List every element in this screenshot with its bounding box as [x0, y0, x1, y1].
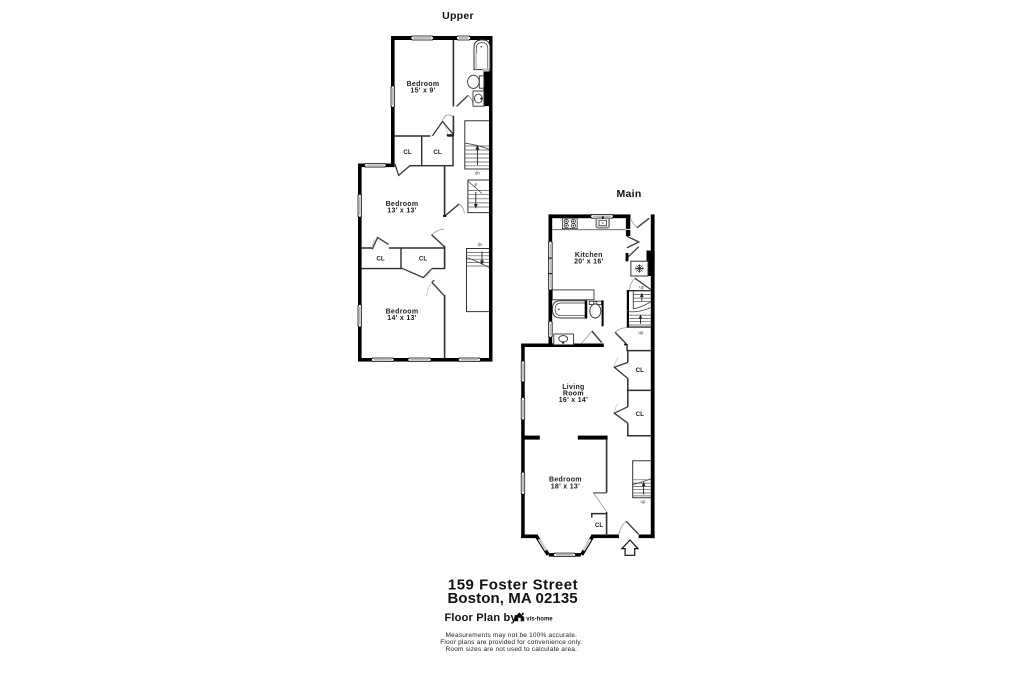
svg-text:13' x 13': 13' x 13' — [387, 208, 416, 215]
svg-text:CL: CL — [403, 149, 411, 156]
svg-text:dn: dn — [478, 242, 483, 247]
svg-text:Floor plans are provided for c: Floor plans are provided for convenience… — [440, 639, 582, 646]
svg-text:CL: CL — [636, 411, 644, 418]
svg-text:15' x 9': 15' x 9' — [410, 87, 435, 94]
svg-text:CL: CL — [433, 149, 441, 156]
svg-text:up: up — [639, 330, 644, 335]
svg-text:Measurements may not be 100% a: Measurements may not be 100% accurate. — [446, 632, 578, 639]
svg-text:Boston, MA 02135: Boston, MA 02135 — [447, 590, 577, 607]
svg-text:14' x 13': 14' x 13' — [387, 315, 416, 322]
svg-text:Upper: Upper — [442, 10, 474, 22]
svg-text:Main: Main — [616, 188, 641, 200]
svg-text:vis-home: vis-home — [526, 616, 553, 622]
svg-text:Room sizes are not used to cal: Room sizes are not used to calculate are… — [445, 646, 577, 653]
svg-text:Floor Plan by: Floor Plan by — [445, 612, 518, 624]
svg-text:20' x 16': 20' x 16' — [574, 259, 603, 266]
svg-text:CL: CL — [376, 255, 384, 262]
svg-text:up: up — [639, 284, 644, 289]
svg-text:18' x 13': 18' x 13' — [551, 483, 580, 490]
svg-text:CL: CL — [636, 367, 644, 374]
svg-text:CL: CL — [419, 255, 427, 262]
svg-text:16' x 14': 16' x 14' — [559, 397, 588, 404]
svg-text:CL: CL — [595, 522, 603, 529]
svg-text:up: up — [641, 499, 646, 504]
svg-text:dn: dn — [475, 171, 480, 176]
